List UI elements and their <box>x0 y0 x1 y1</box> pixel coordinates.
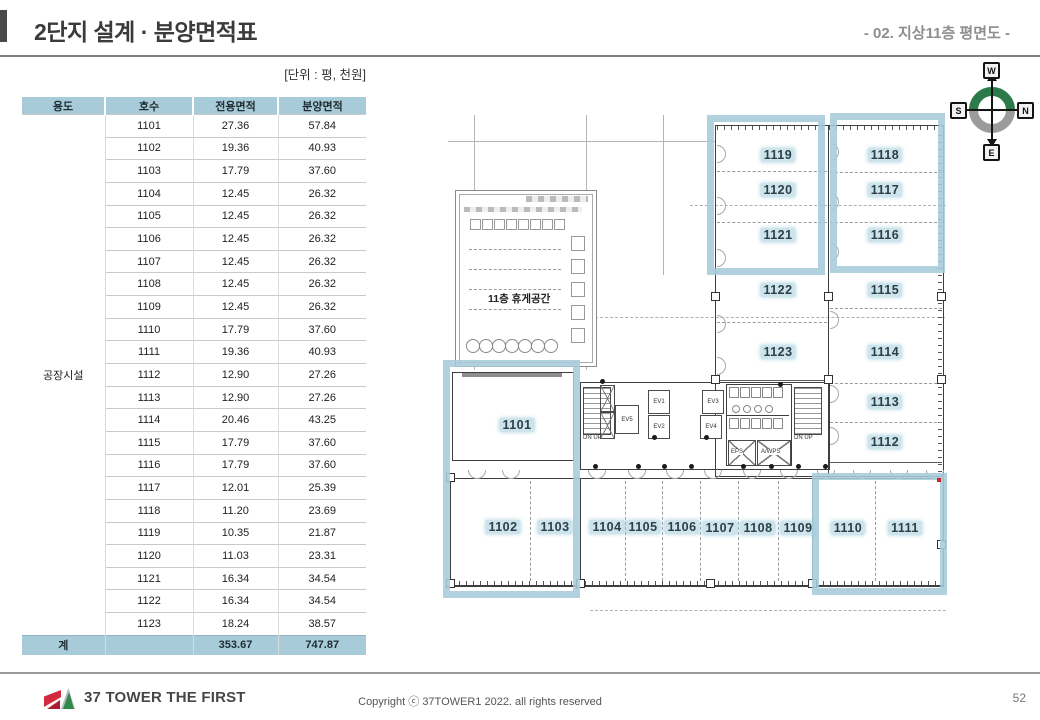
table-cell: 37.60 <box>278 454 366 477</box>
table-cell: 1105 <box>105 205 193 228</box>
inset-hatch-band <box>526 196 588 202</box>
inset-detail <box>518 219 529 230</box>
room-divider <box>700 481 701 581</box>
door-dot <box>823 464 828 469</box>
door-dot <box>636 464 641 469</box>
table-cell: 1113 <box>105 386 193 409</box>
table-cell: 17.79 <box>193 431 278 454</box>
table-cell: 12.45 <box>193 296 278 319</box>
table-total-row: 계 353.67 747.87 <box>22 635 366 655</box>
door-dot <box>769 464 774 469</box>
table-cell: 37.60 <box>278 160 366 183</box>
room-divider <box>830 422 942 423</box>
highlight-frame <box>443 360 580 598</box>
total-exclusive-cell: 353.67 <box>193 635 278 655</box>
inset-detail <box>466 339 480 353</box>
table-cell: 26.32 <box>278 205 366 228</box>
grid-line <box>590 610 946 611</box>
compass-north: N <box>1017 102 1034 119</box>
table-cell: 1109 <box>105 296 193 319</box>
inset-detail <box>530 219 541 230</box>
room-label-1105: 1105 <box>625 520 660 534</box>
toilet-stall <box>762 387 772 398</box>
table-cell: 25.39 <box>278 477 366 500</box>
table-cell: 11.03 <box>193 545 278 568</box>
door-dot <box>600 379 605 384</box>
table-cell: 16.34 <box>193 567 278 590</box>
room-label-1107: 1107 <box>702 521 737 535</box>
toilet-stall <box>751 418 761 429</box>
door-dot <box>652 435 657 440</box>
table-cell: 18.24 <box>193 613 278 636</box>
room-divider <box>830 462 942 463</box>
red-mark <box>937 478 941 482</box>
room-wall <box>580 478 581 585</box>
column-marker <box>824 292 833 301</box>
table-row: 공장시설110127.3657.84 <box>22 115 366 138</box>
room-label-1122: 1122 <box>760 283 795 297</box>
compass-axis <box>964 109 1020 111</box>
inset-detail <box>505 339 519 353</box>
grid-line <box>663 115 664 275</box>
column-marker <box>711 375 720 384</box>
room-label-1121: 1121 <box>760 228 795 242</box>
room-label-1103: 1103 <box>537 520 572 534</box>
inset-detail <box>470 219 481 230</box>
toilet-stall <box>773 387 783 398</box>
room-divider <box>830 308 942 309</box>
table-cell: 27.26 <box>278 364 366 387</box>
table-cell: 11.20 <box>193 499 278 522</box>
column-marker <box>706 579 715 588</box>
table-cell: 12.45 <box>193 273 278 296</box>
total-sale-cell: 747.87 <box>278 635 366 655</box>
table-cell: 12.45 <box>193 205 278 228</box>
inset-dash <box>469 289 561 290</box>
room-divider <box>717 322 827 323</box>
column-marker <box>937 292 946 301</box>
room-label-1112: 1112 <box>868 435 902 449</box>
table-cell: 27.26 <box>278 386 366 409</box>
eps-label: EPS <box>731 449 743 455</box>
inset-detail <box>482 219 493 230</box>
table-cell: 1118 <box>105 499 193 522</box>
inset-detail <box>542 219 553 230</box>
room-label-1109: 1109 <box>780 521 815 535</box>
inset-detail <box>492 339 506 353</box>
room-label-1123: 1123 <box>760 345 795 359</box>
table-cell: 1107 <box>105 250 193 273</box>
inset-detail <box>571 328 585 343</box>
table-cell: 1111 <box>105 341 193 364</box>
table-cell: 40.93 <box>278 341 366 364</box>
toilet-divider <box>727 415 789 416</box>
elevator-ev5: EV5 <box>615 405 639 434</box>
shaft-box <box>600 385 615 412</box>
table-cell: 1122 <box>105 590 193 613</box>
table-cell: 1112 <box>105 364 193 387</box>
brand-name: 37 TOWER THE FIRST <box>84 689 246 706</box>
stair-left-label: DN UP <box>583 435 602 441</box>
compass-east: E <box>983 144 1000 161</box>
column-marker <box>937 375 946 384</box>
toilet-stall <box>729 418 739 429</box>
door-dot <box>593 464 598 469</box>
table-cell: 26.32 <box>278 182 366 205</box>
awps-label: A/WPS <box>761 449 780 455</box>
inset-detail <box>531 339 545 353</box>
area-table: 용도 호수 전용면적 분양면적 공장시설110127.3657.84110219… <box>22 97 366 655</box>
inset-dash <box>469 269 561 270</box>
table-cell: 12.01 <box>193 477 278 500</box>
header-divider <box>0 55 1040 57</box>
compass: W E S N <box>950 62 1034 160</box>
usage-cell: 공장시설 <box>22 115 105 636</box>
toilet-stall <box>740 418 750 429</box>
inset-dash <box>469 249 561 250</box>
table-cell: 1120 <box>105 545 193 568</box>
table-cell: 1106 <box>105 228 193 251</box>
inset-dash <box>469 309 561 310</box>
table-cell: 57.84 <box>278 115 366 138</box>
table-cell: 1110 <box>105 318 193 341</box>
table-cell: 12.90 <box>193 386 278 409</box>
grid-line <box>448 141 715 142</box>
table-cell: 27.36 <box>193 115 278 138</box>
table-cell: 34.54 <box>278 590 366 613</box>
table-cell: 37.60 <box>278 318 366 341</box>
elevator-ev3: EV3 <box>702 390 724 414</box>
toilet-sink <box>743 405 751 413</box>
table-cell: 26.32 <box>278 250 366 273</box>
door-dot <box>741 464 746 469</box>
table-cell: 1117 <box>105 477 193 500</box>
room-label-1117: 1117 <box>868 183 902 197</box>
room-label-1101: 1101 <box>499 418 534 432</box>
elevator-ev1: EV1 <box>648 390 670 414</box>
toilet-sink <box>754 405 762 413</box>
table-cell: 16.34 <box>193 590 278 613</box>
rest-area-inset: 11층 휴게공간 <box>455 190 597 367</box>
table-cell: 12.90 <box>193 364 278 387</box>
room-label-1106: 1106 <box>664 520 699 534</box>
room-divider <box>717 380 827 381</box>
table-cell: 37.60 <box>278 431 366 454</box>
door-dot <box>704 435 709 440</box>
table-cell: 12.45 <box>193 250 278 273</box>
room-label-1104: 1104 <box>589 520 624 534</box>
toilet-stall <box>740 387 750 398</box>
col-header-unit: 호수 <box>105 97 193 115</box>
table-cell: 1116 <box>105 454 193 477</box>
unit-note: [단위 : 평, 천원] <box>22 64 366 83</box>
inset-detail <box>571 259 585 274</box>
toilet-stall <box>751 387 761 398</box>
table-cell: 1104 <box>105 182 193 205</box>
toilet-stall <box>762 418 772 429</box>
table-cell: 1101 <box>105 115 193 138</box>
table-cell: 17.79 <box>193 318 278 341</box>
col-header-usage: 용도 <box>22 97 105 115</box>
table-cell: 1103 <box>105 160 193 183</box>
shaft-box <box>600 412 615 439</box>
column-marker <box>711 292 720 301</box>
table-cell: 26.32 <box>278 273 366 296</box>
room-divider <box>662 481 663 581</box>
table-cell: 10.35 <box>193 522 278 545</box>
compass-west: W <box>983 62 1000 79</box>
col-header-sale: 분양면적 <box>278 97 366 115</box>
table-cell: 1115 <box>105 431 193 454</box>
compass-south: S <box>950 102 967 119</box>
door-dot <box>689 464 694 469</box>
room-label-1115: 1115 <box>868 283 902 297</box>
total-label-cell: 계 <box>22 635 105 655</box>
toilet-stall <box>773 418 783 429</box>
toilet-stall <box>729 387 739 398</box>
door-dot <box>796 464 801 469</box>
toilet-sink <box>732 405 740 413</box>
table-cell: 1108 <box>105 273 193 296</box>
header-accent-bar <box>0 10 7 42</box>
inset-detail <box>571 236 585 251</box>
inset-detail <box>494 219 505 230</box>
table-cell: 20.46 <box>193 409 278 432</box>
inset-detail <box>571 282 585 297</box>
table-cell: 1102 <box>105 137 193 160</box>
table-cell: 17.79 <box>193 454 278 477</box>
room-label-1108: 1108 <box>740 521 775 535</box>
stair-right-label: DN UP <box>794 435 813 441</box>
inset-detail <box>518 339 532 353</box>
room-label-1120: 1120 <box>760 183 795 197</box>
table-cell: 1123 <box>105 613 193 636</box>
table-cell: 43.25 <box>278 409 366 432</box>
table-cell: 12.45 <box>193 182 278 205</box>
door-dot <box>662 464 667 469</box>
inset-detail <box>479 339 493 353</box>
table-cell: 26.32 <box>278 228 366 251</box>
room-label-1114: 1114 <box>868 345 902 359</box>
inset-detail <box>554 219 565 230</box>
stair-right <box>794 387 822 435</box>
footer-divider <box>0 672 1040 674</box>
table-cell: 12.45 <box>193 228 278 251</box>
table-cell: 1121 <box>105 567 193 590</box>
room-label-1118: 1118 <box>868 148 902 162</box>
room-divider <box>778 481 779 581</box>
company-logo-icon <box>44 686 76 712</box>
inset-hatch-band <box>464 207 582 212</box>
page-subtitle: - 02. 지상11층 평면도 - <box>864 22 1010 43</box>
toilet-sink <box>765 405 773 413</box>
table-cell: 40.93 <box>278 137 366 160</box>
inset-detail <box>506 219 517 230</box>
room-label-1111: 1111 <box>888 521 922 535</box>
room-label-1102: 1102 <box>485 520 520 534</box>
table-cell: 34.54 <box>278 567 366 590</box>
room-label-1116: 1116 <box>868 228 902 242</box>
table-cell: 1119 <box>105 522 193 545</box>
table-cell: 23.69 <box>278 499 366 522</box>
table-header-row: 용도 호수 전용면적 분양면적 <box>22 97 366 115</box>
floor-plan: 11층 휴게공간 DN UP EV5 EV1 EV2 EV3 EV4 <box>440 85 980 665</box>
room-label-1113: 1113 <box>868 395 902 409</box>
column-marker <box>824 375 833 384</box>
inset-detail <box>571 305 585 320</box>
total-unit-cell <box>105 635 193 655</box>
copyright-text: Copyright ⓒ 37TOWER1 2022. all rights re… <box>320 693 640 709</box>
rest-area-label: 11층 휴게공간 <box>488 291 550 306</box>
table-cell: 1114 <box>105 409 193 432</box>
table-cell: 38.57 <box>278 613 366 636</box>
room-label-1119: 1119 <box>761 148 795 162</box>
table-cell: 23.31 <box>278 545 366 568</box>
table-cell: 21.87 <box>278 522 366 545</box>
page-number: 52 <box>1013 691 1026 705</box>
table-cell: 19.36 <box>193 341 278 364</box>
table-cell: 17.79 <box>193 160 278 183</box>
room-divider <box>738 481 739 581</box>
inset-detail <box>544 339 558 353</box>
table-cell: 19.36 <box>193 137 278 160</box>
slide-page: 2단지 설계 · 분양면적표 - 02. 지상11층 평면도 - [단위 : 평… <box>0 0 1040 720</box>
room-divider <box>830 383 942 384</box>
col-header-exclusive: 전용면적 <box>193 97 278 115</box>
page-title: 2단지 설계 · 분양면적표 <box>34 13 257 47</box>
room-label-1110: 1110 <box>831 521 865 535</box>
table-cell: 26.32 <box>278 296 366 319</box>
